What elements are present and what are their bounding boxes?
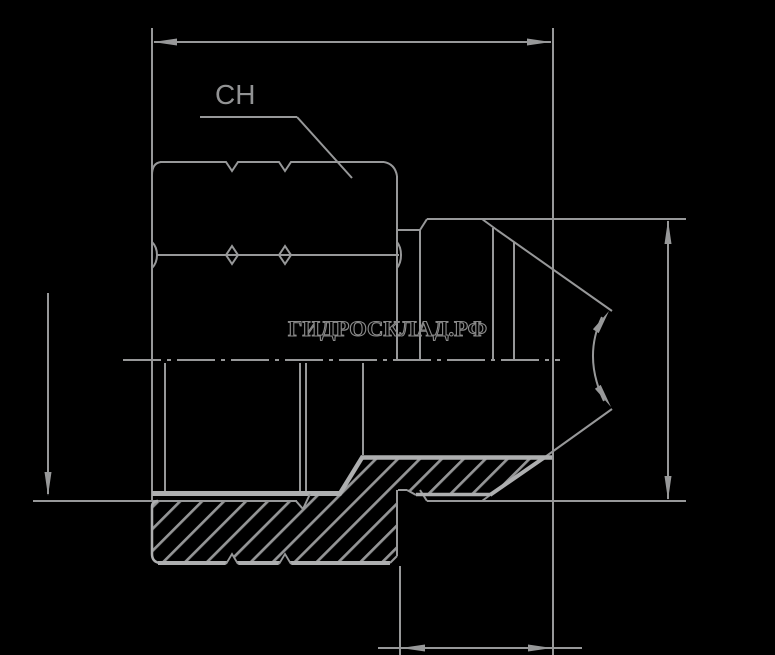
svg-text:CH: CH (215, 79, 255, 110)
svg-text:ГИДРОСКЛАД.РФ: ГИДРОСКЛАД.РФ (288, 316, 487, 341)
